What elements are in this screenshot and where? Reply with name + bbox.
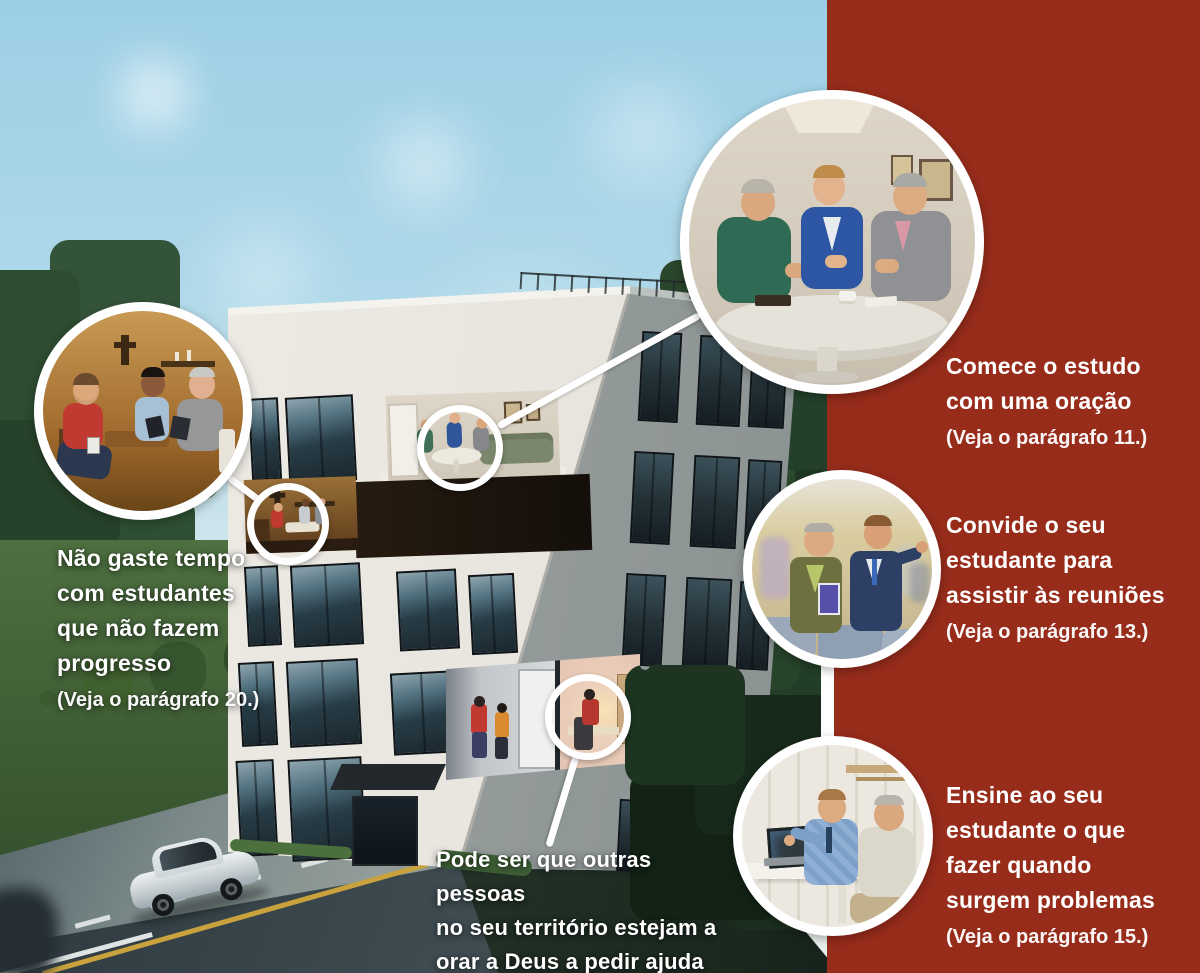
highlight-circle-praying-woman: [545, 674, 631, 760]
photo-circle-start-study: [680, 90, 984, 394]
pendant-lamp: [781, 99, 877, 133]
caption-line: fazer quando: [946, 848, 1196, 883]
entrance-canopy: [330, 764, 446, 790]
building-window: [650, 689, 703, 779]
caption-others-praying: Pode ser que outras pessoas no seu terri…: [436, 843, 736, 973]
building-window: [712, 695, 750, 783]
clouds: [0, 30, 8, 38]
building-window: [468, 573, 518, 655]
building-window: [682, 577, 733, 671]
caption-invite: Convide o seu estudante para assistir às…: [946, 508, 1196, 646]
photo-circle-no-progress: [34, 302, 252, 520]
caption-line: Ensine ao seu: [946, 778, 1196, 813]
caption-reference: (Veja o parágrafo 15.): [946, 923, 1196, 951]
caption-line: estudante o que: [946, 813, 1196, 848]
caption-reference: (Veja o parágrafo 20.): [57, 686, 297, 714]
illustration-scene: Não gaste tempo com estudantes que não f…: [0, 0, 1200, 973]
building-window: [396, 568, 460, 651]
highlight-circle-study-room: [417, 405, 503, 491]
building-window: [286, 658, 362, 748]
caption-line: progresso: [57, 646, 297, 681]
foreground-foliage: [640, 660, 650, 670]
building-window: [290, 562, 364, 648]
caption-line: com estudantes: [57, 576, 297, 611]
photo-circle-problems: [733, 736, 933, 936]
caption-line: Não gaste tempo: [57, 541, 297, 576]
hedge-row: [40, 690, 56, 706]
building-window: [248, 397, 282, 480]
caption-line: Pode ser que outras pessoas: [436, 843, 736, 911]
caption-start-study: Comece o estudo com uma oração (Veja o p…: [946, 349, 1196, 452]
figure-man-green-sweater: [717, 217, 791, 303]
photo-circle-invite: [743, 470, 941, 668]
caption-line: surgem problemas: [946, 883, 1196, 918]
blurred-car: [0, 888, 58, 973]
caption-line: orar a Deus a pedir ajuda: [436, 945, 736, 973]
building-window: [622, 573, 667, 667]
songbook: [818, 583, 840, 615]
caption-line: que não fazem: [57, 611, 297, 646]
building-window: [690, 455, 741, 549]
entrance-door: [352, 796, 418, 866]
building-window: [285, 394, 357, 483]
trees-right: [600, 240, 610, 250]
caption-line: Comece o estudo: [946, 349, 1196, 384]
caption-problems: Ensine ao seu estudante o que fazer quan…: [946, 778, 1196, 951]
panel-white-edge: [821, 660, 834, 744]
caption-line: assistir às reuniões: [946, 578, 1196, 613]
building-window: [630, 451, 675, 545]
caption-line: Convide o seu: [946, 508, 1196, 543]
bible: [755, 295, 791, 306]
figure-older-man-legs: [850, 893, 918, 923]
caption-line: com uma oração: [946, 384, 1196, 419]
caption-line: estudante para: [946, 543, 1196, 578]
figure-man-gray-suit: [871, 211, 951, 301]
figure-older-man-shirt: [858, 827, 914, 897]
coat-rack: [846, 765, 912, 773]
caption-line: no seu território estejam a: [436, 911, 736, 945]
caption-reference: (Veja o parágrafo 13.): [946, 618, 1196, 646]
caption-no-progress: Não gaste tempo com estudantes que não f…: [57, 541, 297, 714]
caption-reference: (Veja o parágrafo 11.): [946, 424, 1196, 452]
